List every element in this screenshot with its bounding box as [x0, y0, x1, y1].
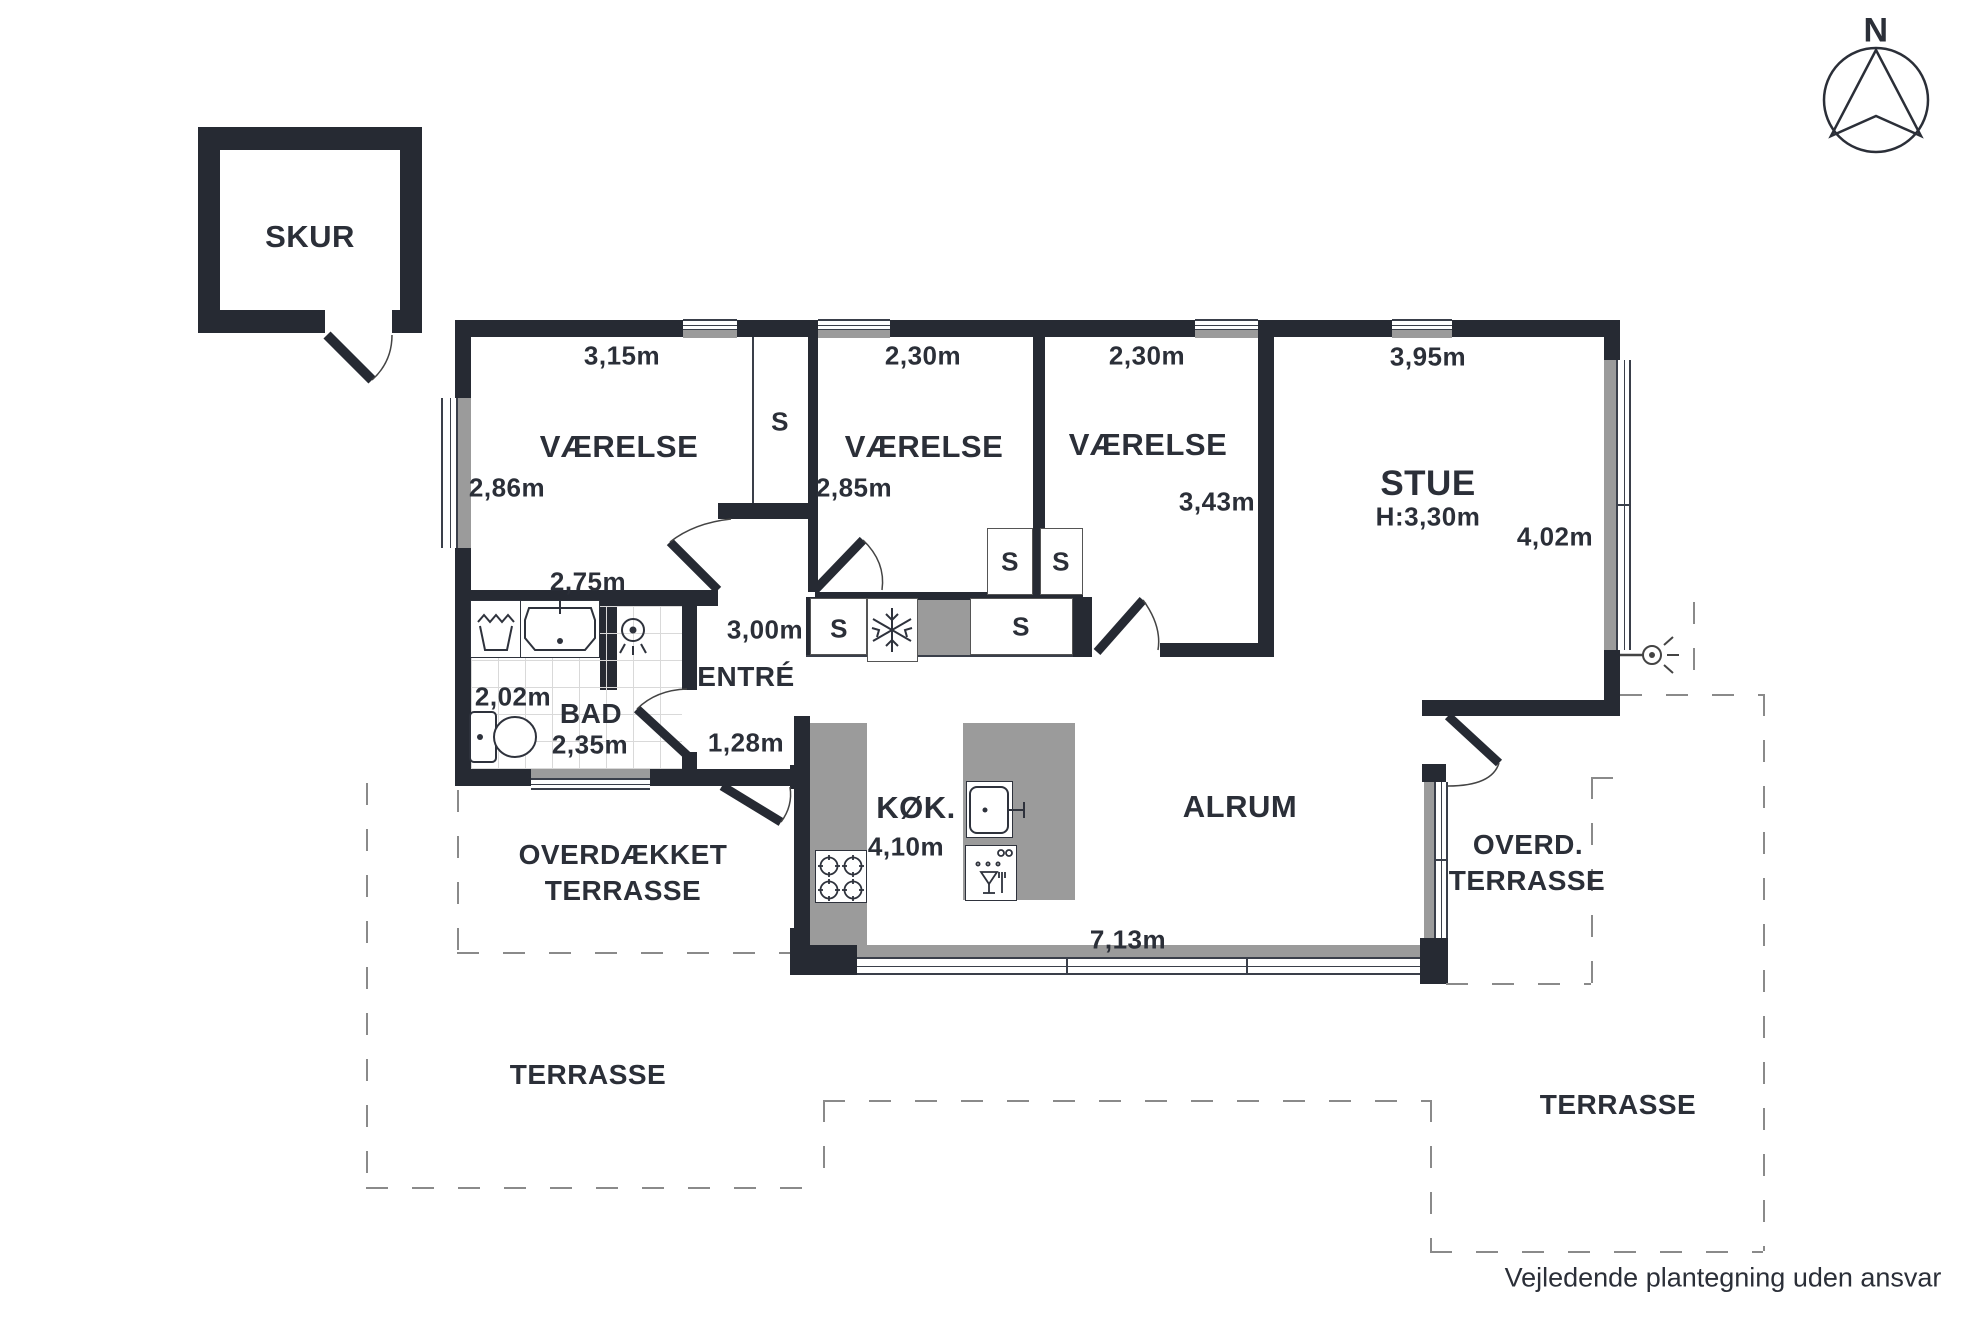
window-room3-top-sill — [1195, 330, 1258, 338]
stue-wall-bottom — [1422, 700, 1620, 716]
dash-terrasse-left-edge — [366, 783, 368, 1187]
dash-terrasse-left-bottom — [366, 1187, 823, 1189]
shed-wall-bottom-left — [198, 310, 325, 333]
window-bad-bottom-sill — [531, 769, 650, 778]
floor-plan: SKUR N 3,15m VÆRELSE 2,86m 2,75m S 2,30m… — [0, 0, 1984, 1323]
sliding-door-break-2 — [1246, 957, 1248, 975]
overd-terrasse-label-2: TERRASSE — [1449, 865, 1605, 897]
bad-entre-wall-stub — [682, 752, 697, 769]
stue-terrace-door — [1448, 716, 1499, 786]
closet-label-room2-box: S — [1001, 547, 1019, 578]
closet-row-cap-east — [1073, 597, 1092, 657]
dash-terrasse-right-bottom — [1430, 1251, 1763, 1253]
dash-terrasse-right-top — [1620, 694, 1763, 696]
dash-overd-top — [1591, 777, 1620, 779]
window-stue-right-mullion — [1616, 504, 1631, 506]
closet-label-room1: S — [771, 407, 789, 438]
window-room1-top-sill — [683, 330, 737, 338]
window-alrum-right-sill — [1424, 782, 1434, 938]
room1-dim-left: 2,86m — [469, 473, 545, 504]
compass-icon — [1824, 48, 1928, 152]
dash-overd-bottom — [1446, 983, 1591, 985]
stove-box — [815, 850, 867, 903]
dash-below-alrum-left — [823, 1100, 825, 1187]
dash-terrasse-right-left-edge — [1430, 1100, 1432, 1251]
compass-north-label: N — [1863, 12, 1888, 51]
room1-closet-line — [752, 337, 754, 503]
dash-near-lamp — [1693, 602, 1695, 694]
room2-label: VÆRELSE — [845, 429, 1004, 465]
room1-closet-wall-bottom — [718, 503, 810, 519]
shed-wall-right — [400, 127, 422, 333]
dishwasher-box — [965, 845, 1017, 901]
stue-ceiling-height: H:3,30m — [1376, 502, 1481, 533]
freezer-box — [867, 598, 918, 662]
kitchen-counter — [810, 723, 867, 945]
window-stue-top-sill — [1392, 330, 1452, 338]
dash-below-alrum — [823, 1100, 1430, 1102]
terrasse-right-label: TERRASSE — [1540, 1089, 1696, 1121]
bad-label: BAD — [560, 698, 622, 730]
room3-door — [1097, 600, 1159, 652]
window-stue-right-sill — [1604, 360, 1616, 650]
entre-terrace-door — [722, 786, 791, 822]
alrum-window-top-block — [1422, 764, 1446, 782]
alrum-corner-right — [1420, 938, 1448, 984]
closet-gray-section — [918, 600, 970, 655]
disclaimer-text: Vejledende plantegning uden ansvar — [1505, 1263, 1942, 1294]
window-bad-bottom — [531, 778, 650, 790]
room3-label: VÆRELSE — [1069, 427, 1228, 463]
stue-label: STUE — [1380, 464, 1475, 504]
bad-dim-left: 2,02m — [475, 682, 551, 713]
dash-overdaekket-left — [457, 790, 459, 952]
entre-label: ENTRÉ — [697, 661, 794, 693]
hall-wall-bottom-d — [1160, 643, 1258, 657]
bad-dim-bottom: 2,35m — [552, 730, 628, 761]
stue-dim-top: 3,95m — [1390, 342, 1466, 373]
dash-terrasse-right-edge — [1763, 694, 1765, 1251]
closet-label-row-2: S — [1012, 612, 1030, 643]
sliding-door-glazing — [857, 957, 1420, 975]
room3-dim-right: 3,43m — [1179, 487, 1255, 518]
kitchen-wall-west — [794, 716, 810, 945]
closet-label-row-1: S — [830, 614, 848, 645]
closet-row-bottom-line — [806, 655, 1073, 657]
window-alrum-right-mullion — [1434, 859, 1448, 861]
entre-dim-bottom: 1,28m — [708, 728, 784, 759]
stue-dim-right: 4,02m — [1517, 522, 1593, 553]
house-wall-left — [455, 320, 471, 786]
window-room2-top-sill — [818, 330, 890, 338]
kitchen-dim: 4,10m — [868, 832, 944, 863]
shed-door — [327, 335, 392, 380]
terrasse-left-label: TERRASSE — [510, 1059, 666, 1091]
room2-dim-top: 2,30m — [885, 341, 961, 372]
overd-terrasse-label-1: OVERD. — [1473, 829, 1583, 861]
shed-wall-top — [198, 127, 422, 150]
plan-symbols — [0, 0, 1984, 1323]
alrum-dim-bottom: 7,13m — [1090, 925, 1166, 956]
washbasin-box — [520, 600, 600, 658]
room3-dim-top: 2,30m — [1109, 341, 1185, 372]
entre-dim-top: 3,00m — [727, 615, 803, 646]
room1-door — [670, 519, 731, 590]
laundry-basket-box — [470, 600, 522, 658]
closet-label-room3-box: S — [1052, 547, 1070, 578]
room3-stue-wall — [1258, 336, 1274, 657]
room1-dim-bottom: 2,75m — [550, 567, 626, 598]
room1-label: VÆRELSE — [540, 429, 699, 465]
overdaekket-terrasse-label-1: OVERDÆKKET — [519, 839, 728, 871]
shed-wall-bottom-right — [392, 310, 422, 333]
shed-wall-left — [198, 127, 220, 333]
sliding-door-break-1 — [1066, 957, 1068, 975]
room2-dim-left: 2,85m — [816, 473, 892, 504]
kitchen-label: KØK. — [876, 790, 956, 826]
room2-door — [815, 540, 883, 590]
alrum-label: ALRUM — [1183, 789, 1297, 825]
shed-label: SKUR — [265, 219, 355, 255]
window-room1-left — [441, 398, 458, 548]
room2-wall-left — [808, 336, 818, 592]
overdaekket-terrasse-label-2: TERRASSE — [545, 875, 701, 907]
room1-dim-top: 3,15m — [584, 341, 660, 372]
dash-overdaekket-bottom — [457, 952, 790, 954]
bad-entre-wall — [682, 590, 697, 690]
island-sink-box — [966, 781, 1013, 838]
